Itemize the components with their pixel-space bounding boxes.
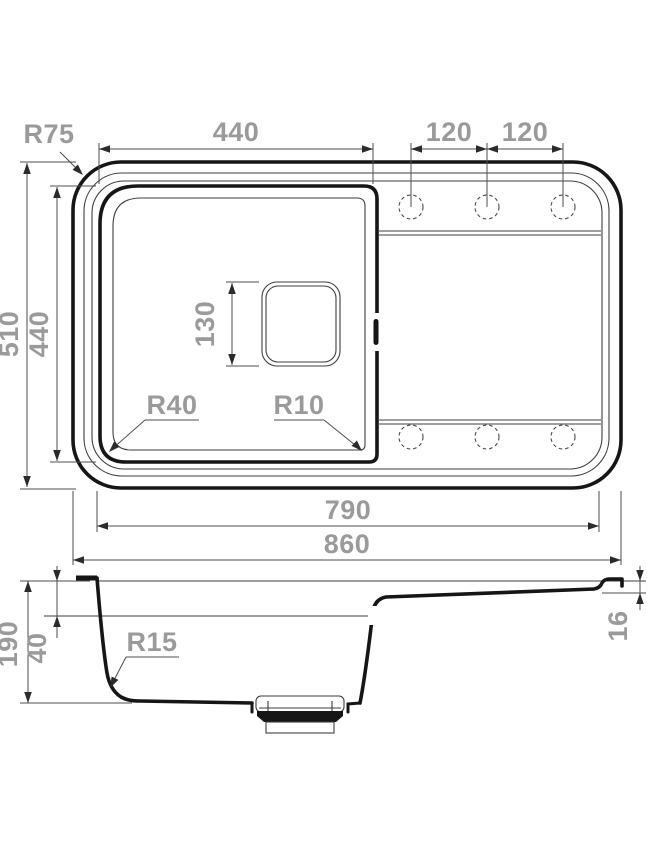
dim-drainboard-depth-label: 16 [603, 610, 633, 641]
dim-bottom-corner-radius: R15 [107, 627, 179, 690]
drain-step-right [348, 703, 360, 712]
dim-bowl-corner-radius-left-label: R40 [146, 390, 197, 420]
dim-faucet-spacing-left-label: 120 [426, 117, 473, 147]
rim-inner-line-1 [84, 173, 609, 476]
dim-overall-depth-label: 510 [0, 311, 24, 358]
top-view: R75 440 120 120 [0, 117, 621, 565]
side-view: 190 40 R15 16 [0, 566, 646, 733]
rim-inner-line-2 [92, 181, 602, 469]
dim-bowl-corner-radius-right-label: R10 [273, 390, 324, 420]
dim-overall-height-label: 190 [0, 621, 23, 668]
faucet-hole-5 [475, 425, 499, 449]
dim-bowl-width-label: 440 [213, 117, 260, 147]
dim-bowl-width: 440 [99, 117, 373, 184]
dim-bowl-corner-radius-left: R40 [106, 390, 199, 455]
dim-overall-width-label: 860 [324, 529, 371, 559]
dim-bottom-corner-radius-label: R15 [126, 627, 177, 657]
drain-opening [262, 282, 340, 366]
overflow-tick [374, 319, 379, 345]
dim-bowl-depth-label: 440 [24, 311, 54, 358]
faucet-hole-4 [399, 425, 423, 449]
drain-collar [257, 711, 343, 722]
dim-corner-radius: R75 [23, 119, 85, 178]
faucet-hole-6 [551, 425, 575, 449]
drain-flange [256, 696, 344, 712]
dim-faucet-spacing-right-label: 120 [502, 117, 549, 147]
dim-drain-size-label: 130 [190, 301, 220, 348]
sink-technical-drawing: R75 440 120 120 [0, 0, 647, 847]
dim-rim-depth-label: 40 [22, 632, 52, 663]
faucet-holes [399, 195, 575, 449]
drainboard-grooves [379, 231, 601, 424]
drawing-canvas: R75 440 120 120 [0, 0, 647, 847]
dim-bowl-corner-radius-right: R10 [273, 390, 364, 454]
wall-break-gap [368, 606, 379, 625]
dim-bowl-depth: 440 [24, 186, 96, 462]
bowl-right-wall-drainboard-profile [360, 579, 622, 703]
dim-inner-width: 790 [97, 491, 599, 532]
dim-drain-size: 130 [190, 282, 259, 366]
dim-inner-width-label: 790 [325, 495, 372, 525]
dim-corner-radius-label: R75 [23, 119, 74, 149]
drain-tailpiece [266, 722, 334, 733]
drain-assembly [256, 696, 344, 733]
